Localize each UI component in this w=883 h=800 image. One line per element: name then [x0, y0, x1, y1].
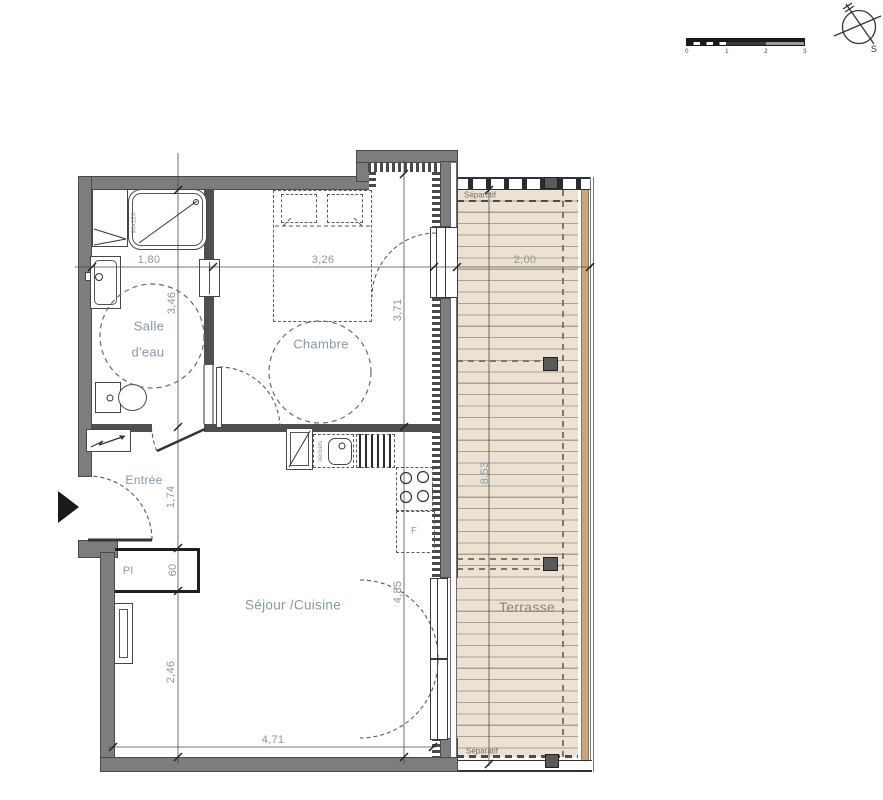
room-label-entree: Entrée: [125, 473, 162, 487]
room-label-salle-deau-2: d'eau: [132, 345, 165, 360]
terrace-post-3: [543, 557, 558, 571]
bath-door-arc: [152, 430, 157, 451]
living-bay-window: [430, 578, 448, 740]
terrace-top-railing: [455, 177, 590, 190]
cooktop: [396, 467, 433, 511]
shower-size-label: 90x120: [131, 212, 138, 233]
electrical-panel: [86, 429, 131, 452]
scale-tick-0: 0: [685, 49, 689, 55]
scale-tick-3: 3: [803, 49, 807, 55]
waste-label: déchets: [318, 440, 324, 461]
dim-bath-width: 1,80: [138, 254, 161, 266]
insulation-top: [368, 163, 440, 172]
wall-bottom: [100, 757, 458, 772]
entry-arrow-icon: [58, 491, 79, 523]
terrace-divider-2b: [457, 568, 544, 570]
floor-plan-page: Salle d'eau Chambre Entrée Séjour /Cuisi…: [0, 0, 883, 800]
dim-bedroom-width: 3,26: [312, 254, 335, 266]
dim-sejour-width: 4,71: [262, 734, 285, 746]
terrace-outer-line: [590, 177, 594, 772]
dim-hall-depth: 1,74: [165, 486, 177, 509]
closet-wall-right: [197, 548, 200, 593]
closet-wall-bottom: [115, 590, 200, 593]
insulation-right-a: [432, 172, 440, 227]
wall-left-lower: [100, 552, 115, 772]
compass-south-label: S: [871, 44, 877, 54]
terrace-boundary-dashed: [562, 190, 564, 757]
bay-door-arc-lower: [360, 660, 438, 738]
bed-pillow-right: [327, 194, 363, 223]
separatif-label-top: Séparatif: [464, 191, 496, 200]
toilet-bowl: [118, 384, 147, 411]
terrace-post-4: [545, 754, 559, 768]
terrace-post-2: [543, 357, 558, 371]
terrace-bottom-railing: [455, 760, 592, 772]
wall-top: [78, 176, 370, 190]
dim-bedroom-depth: 3,71: [392, 299, 404, 322]
room-label-placard: Pl: [123, 565, 133, 577]
dim-terrace-width: 2,00: [514, 254, 537, 266]
room-label-salle-deau-1: Salle: [134, 319, 164, 334]
kitchen-drainer: [356, 434, 395, 468]
dim-sejour-left-depth: 2,46: [165, 661, 177, 684]
scale-tick-1: 1: [725, 49, 729, 55]
bed-pillow-left: [281, 194, 317, 223]
closet-wall-top: [115, 548, 200, 551]
scale-tick-2: 2: [764, 49, 768, 55]
bathroom-cabinet: [92, 189, 128, 247]
kitchen-tall-unit: [286, 428, 313, 470]
separatif-line-top: [457, 200, 578, 202]
bedroom-window: [430, 227, 458, 298]
bedroom-door-arc: [219, 367, 280, 428]
bedroom-window-arc: [372, 233, 436, 297]
terrace-deck: [457, 190, 578, 757]
insulation-bump-side: [369, 172, 376, 190]
dim-closet-depth: 60: [167, 564, 179, 577]
bath-door-leaf: [157, 429, 205, 451]
dim-bath-depth: 3,46: [166, 292, 178, 315]
shower: [128, 189, 207, 250]
insulation-right-c: [432, 738, 440, 757]
fridge-label: F: [411, 526, 417, 537]
detail-lines: [88, 200, 429, 541]
terrace-divider-1: [457, 360, 544, 362]
bedroom-door-leaf: [216, 367, 222, 428]
washbasin: [90, 256, 121, 309]
towel-radiator: [199, 259, 220, 297]
terrace-divider-2a: [457, 558, 544, 560]
separatif-label-bottom: Séparatif: [466, 747, 498, 756]
dim-terrace-length: 8,53: [479, 462, 491, 485]
compass-icon: [834, 3, 881, 44]
washbasin-tap: [85, 272, 91, 281]
room-label-sejour: Séjour /Cuisine: [245, 598, 341, 613]
room-label-chambre: Chambre: [293, 337, 349, 352]
room-label-terrasse: Terrasse: [499, 599, 555, 615]
terrace-wood-edge: [581, 177, 589, 772]
living-radiator: [114, 603, 133, 664]
dim-sejour-right-depth: 4,85: [392, 581, 404, 604]
kitchen-sink-basin: [328, 438, 352, 465]
terrace-post-1: [544, 177, 558, 189]
scale-bar: [686, 38, 805, 46]
wall-bedroom-bottom: [204, 424, 440, 432]
